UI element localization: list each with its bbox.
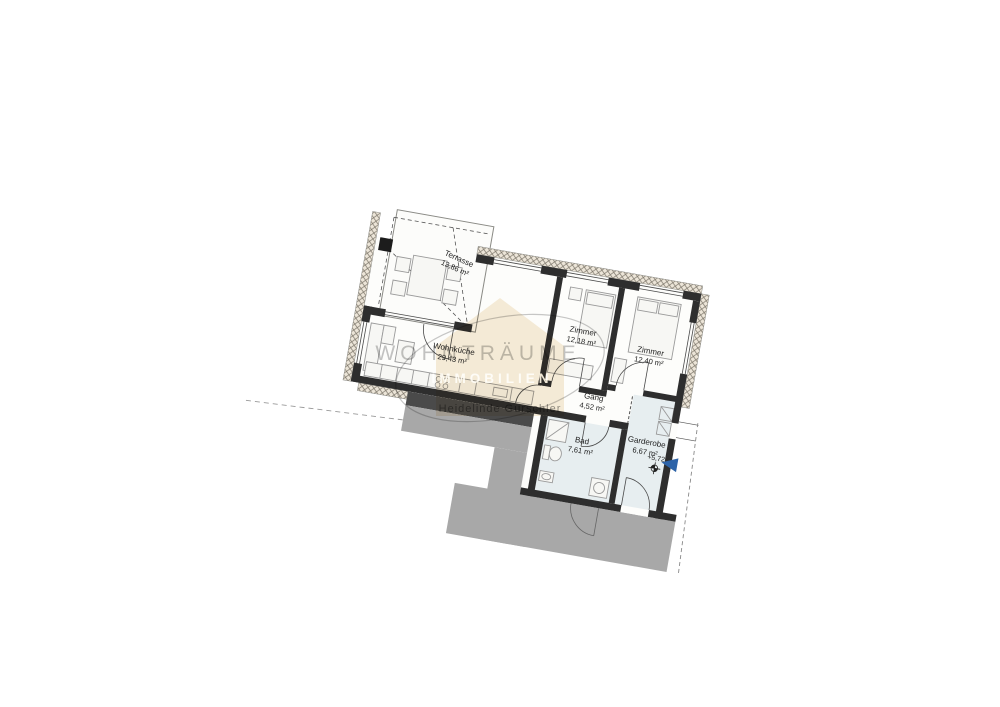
sink-symbol [539, 471, 555, 483]
neighbor-passage [676, 422, 698, 441]
terrace-column [378, 237, 393, 252]
boundary-dashed-left [246, 392, 403, 427]
shower-symbol [546, 419, 569, 442]
neighbor-boundary-dashed [671, 423, 704, 574]
washer-symbol [589, 478, 610, 499]
floorplan-rotated-wrap: Wohnküche 29,43 m² Zimmer 12,18 m² Zimme… [216, 178, 748, 596]
floorplan-svg: Wohnküche 29,43 m² Zimmer 12,18 m² Zimme… [216, 178, 748, 596]
floorplan-page: Wohnküche 29,43 m² Zimmer 12,18 m² Zimme… [0, 0, 1000, 707]
